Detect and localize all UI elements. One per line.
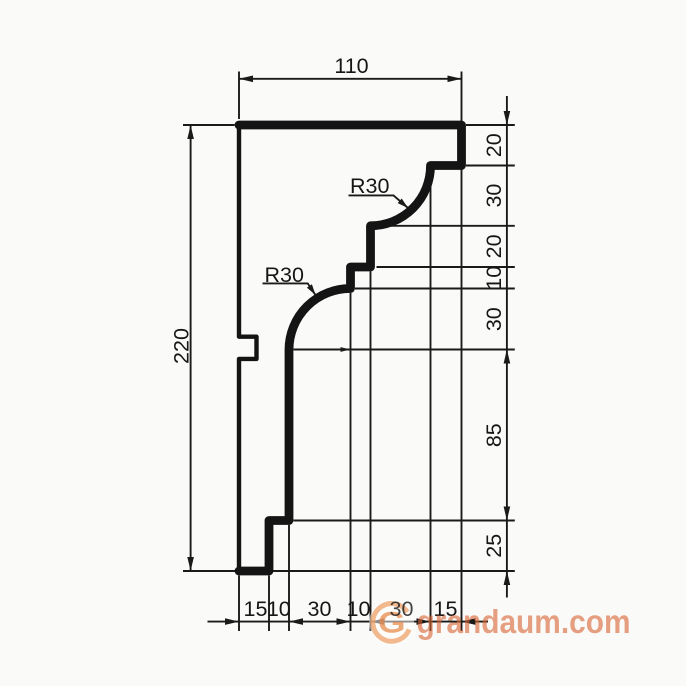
svg-text:15: 15	[244, 597, 268, 621]
svg-text:20: 20	[482, 133, 506, 157]
svg-text:10: 10	[482, 266, 506, 290]
svg-text:110: 110	[334, 54, 368, 78]
svg-text:10: 10	[347, 597, 371, 621]
svg-text:30: 30	[390, 597, 414, 621]
svg-text:25: 25	[482, 534, 506, 558]
svg-text:R30: R30	[350, 174, 389, 198]
svg-text:30: 30	[482, 307, 506, 331]
svg-text:R30: R30	[265, 263, 304, 287]
svg-text:20: 20	[482, 234, 506, 258]
svg-text:85: 85	[482, 423, 506, 447]
svg-text:220: 220	[169, 328, 193, 364]
svg-text:10: 10	[267, 597, 291, 621]
svg-text:grandaum.com: grandaum.com	[417, 603, 631, 640]
svg-text:30: 30	[308, 597, 332, 621]
svg-text:30: 30	[482, 184, 506, 208]
